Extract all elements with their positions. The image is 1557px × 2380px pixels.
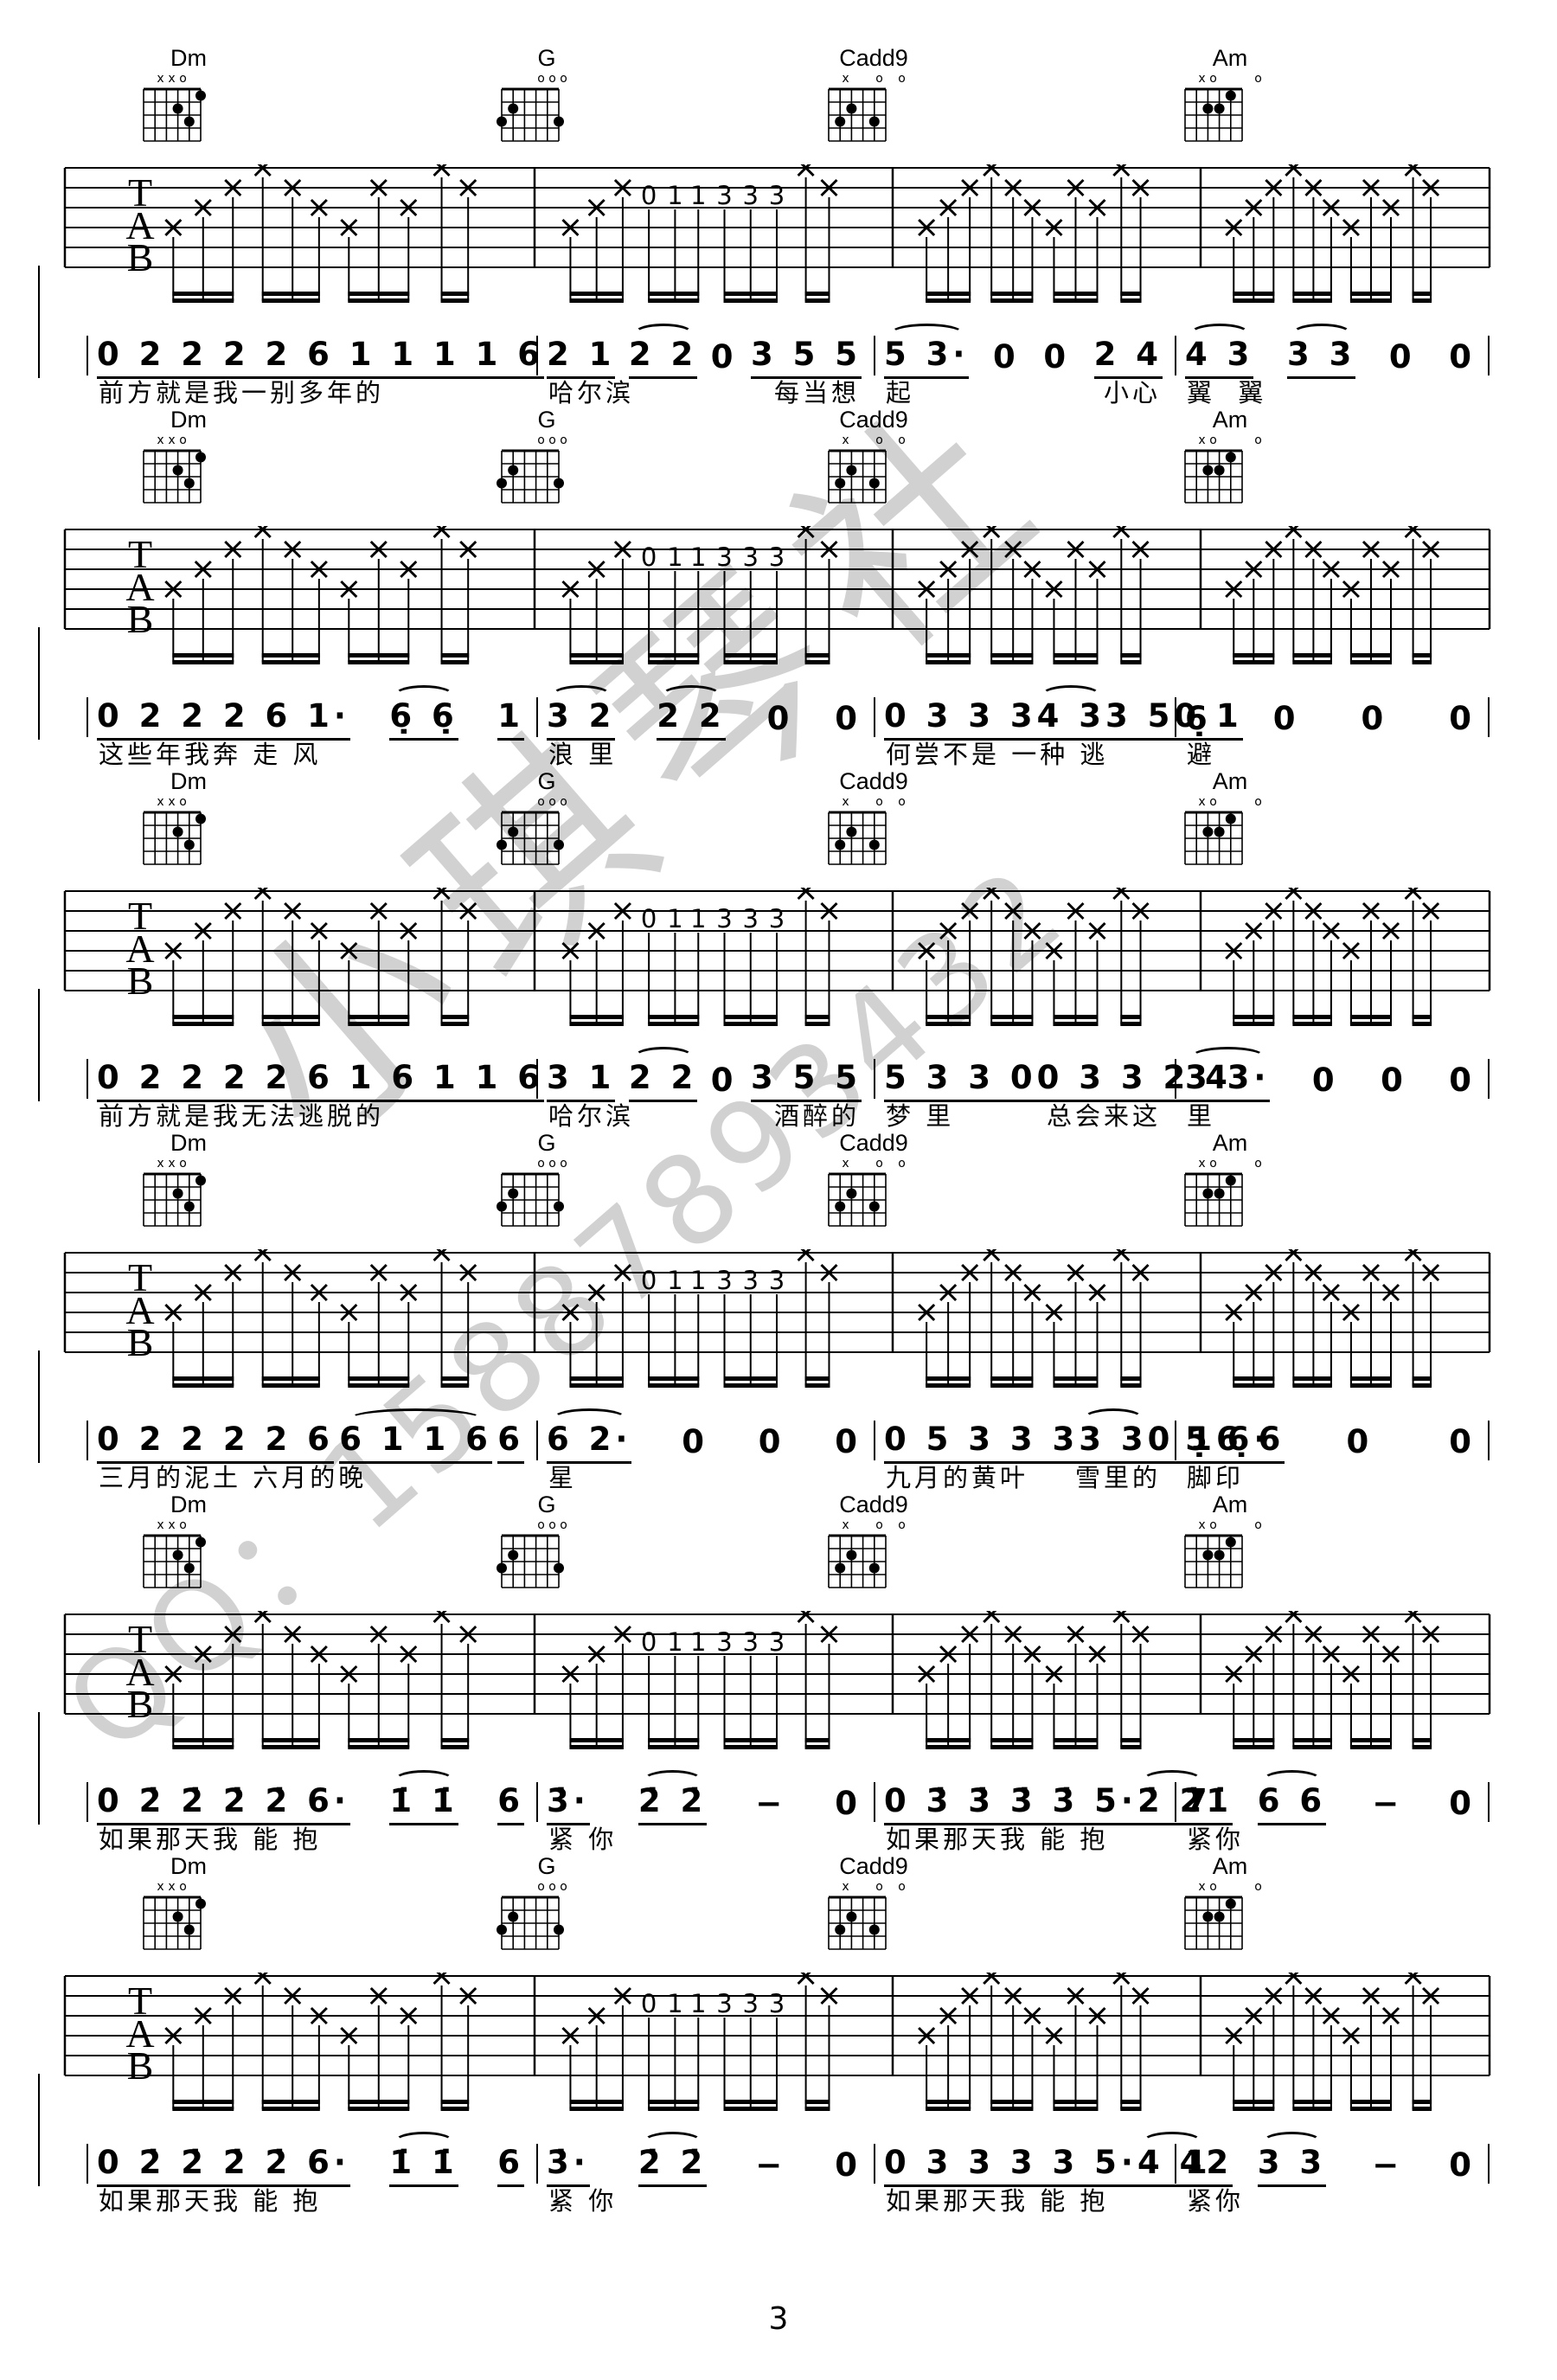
tab-fret-number: 0 xyxy=(641,904,657,933)
jianpu-barline xyxy=(874,697,875,737)
tab-staff: TAB011333 xyxy=(0,1973,1557,2120)
jianpu-barline xyxy=(86,1782,88,1822)
string-marker-empty xyxy=(189,434,200,448)
tie-arc xyxy=(1041,685,1101,706)
tab-fret-number: 1 xyxy=(667,181,682,210)
jianpu-group: 0 xyxy=(1273,702,1300,741)
lyric-text: 紧你 xyxy=(1187,1824,1244,1855)
jianpu-measure-3: 0 5 3 3 33 30 16 6 xyxy=(884,1414,1163,1464)
string-marker-empty xyxy=(851,1158,862,1171)
tab-fret-number: 3 xyxy=(743,1266,759,1295)
chord-diagram-am: Amxoo xyxy=(1178,768,1282,869)
chord-grid-wrap xyxy=(1178,1533,1282,1592)
string-marker-empty xyxy=(200,1881,211,1895)
chord-string-markers: xoo xyxy=(1178,1158,1282,1171)
chord-name: Dm xyxy=(137,407,240,433)
tab-fret-number: 3 xyxy=(769,542,785,572)
jianpu-group: 0 xyxy=(835,1426,862,1464)
jianpu-group: 0 xyxy=(1312,1064,1339,1102)
muted-string-marker: x xyxy=(166,1881,177,1895)
strum-x-mark xyxy=(1113,526,1129,537)
chord-string-markers: ooo xyxy=(495,73,599,87)
chord-grid-wrap xyxy=(137,1533,240,1592)
jianpu-barline xyxy=(86,697,88,737)
jianpu-barline xyxy=(1488,2144,1490,2184)
muted-string-marker: x xyxy=(155,1519,166,1533)
jianpu-group: − xyxy=(1372,2149,1403,2187)
string-marker-empty xyxy=(513,796,524,810)
chord-name: Am xyxy=(1178,1492,1282,1517)
lyric-text: 前方就是我一别多年的 xyxy=(99,377,384,408)
chord-string-markers: ooo xyxy=(495,1158,599,1171)
jianpu-group: 3̇· xyxy=(547,1785,590,1825)
string-marker-empty xyxy=(862,73,874,87)
tab-fret-number: 3 xyxy=(743,1627,759,1657)
lyric-text: 雪里的 xyxy=(1075,1462,1161,1493)
string-marker-empty xyxy=(1230,1881,1241,1895)
strum-x-mark xyxy=(434,1249,450,1261)
jianpu-group: 6 xyxy=(497,1785,524,1825)
jianpu-group: 0 xyxy=(711,1064,738,1102)
chord-name: Am xyxy=(1178,1853,1282,1879)
muted-string-marker: x xyxy=(1196,434,1208,448)
open-string-marker: o xyxy=(874,434,885,448)
open-string-marker: o xyxy=(896,1158,907,1171)
string-marker-empty xyxy=(524,1881,535,1895)
string-marker-empty xyxy=(524,1158,535,1171)
tab-clef-letter: B xyxy=(127,2043,154,2088)
open-string-marker: o xyxy=(1208,796,1219,810)
open-string-marker: o xyxy=(177,434,189,448)
jianpu-group: 1 xyxy=(497,700,524,741)
jianpu-barline xyxy=(1488,1059,1490,1099)
chord-grid xyxy=(137,1171,208,1230)
chord-string-markers: ooo xyxy=(495,796,599,810)
chord-diagram-dm: Dmxxo xyxy=(137,45,240,145)
chord-grid-wrap xyxy=(495,810,599,869)
open-string-marker: o xyxy=(1208,73,1219,87)
jianpu-group: 0 xyxy=(1449,1787,1476,1825)
string-marker-empty xyxy=(1230,73,1241,87)
chord-grid-wrap xyxy=(137,810,240,869)
tab-fret-number: 3 xyxy=(716,542,732,572)
jianpu-measure-2: 3̇·2̇ 2̇−0 xyxy=(547,1775,862,1825)
tab-fret-number: 0 xyxy=(641,542,657,572)
string-marker-empty xyxy=(569,1881,580,1895)
string-marker-empty xyxy=(513,73,524,87)
tie-arc xyxy=(551,685,612,706)
chord-diagram-dm: Dmxxo xyxy=(137,1492,240,1592)
muted-string-marker: x xyxy=(155,796,166,810)
jianpu-group: 2̇ 2̇ xyxy=(638,2146,707,2187)
string-marker-empty xyxy=(1219,73,1230,87)
tab-clef-letter: B xyxy=(127,959,154,1003)
jianpu-measure-2: 2 12 203 5 5 xyxy=(547,329,862,379)
lyric-text: 星 xyxy=(548,1462,577,1493)
strum-x-mark xyxy=(798,164,814,176)
jianpu-group: 0 xyxy=(711,341,738,379)
jianpu-group: 3 2 xyxy=(547,700,615,741)
strum-x-mark xyxy=(1285,526,1301,537)
jianpu-group: 0 xyxy=(682,1426,708,1464)
chord-name: G xyxy=(495,407,599,433)
muted-string-marker: x xyxy=(155,1881,166,1895)
chord-string-markers: xoo xyxy=(822,1519,926,1533)
jianpu-group: 3 3· xyxy=(1185,1062,1270,1102)
chord-grid xyxy=(495,810,566,869)
chord-string-markers: ooo xyxy=(495,1519,599,1533)
strum-x-mark xyxy=(434,1973,450,1984)
lyric-text: 浪 里 xyxy=(548,739,617,770)
jianpu-group: 2 2 xyxy=(629,338,697,379)
jianpu-group: 3 3 xyxy=(1079,1423,1147,1464)
tab-fret-number: 3 xyxy=(743,1989,759,2018)
tab-fret-number: 0 xyxy=(641,1266,657,1295)
chord-diagram-cadd9: Cadd9xoo xyxy=(822,768,926,869)
system-1: DmxxoGoooCadd9xooAmxooTAB0113330 2 2 2 2… xyxy=(0,45,1557,407)
strum-x-mark xyxy=(1285,164,1301,176)
open-string-marker: o xyxy=(535,796,547,810)
open-string-marker: o xyxy=(896,796,907,810)
lyric-text: 如果那天我 能 抱 xyxy=(886,2185,1108,2216)
jianpu-measure-3: 5 3 3 00 3 3 2 4 xyxy=(884,1052,1163,1102)
jianpu-group: 0 3 3 3 xyxy=(884,700,1037,741)
string-marker-empty xyxy=(211,1519,222,1533)
muted-string-marker: x xyxy=(1196,1881,1208,1895)
strum-x-mark xyxy=(1285,1973,1301,1984)
chord-grid xyxy=(137,810,208,869)
jianpu-group: 0 xyxy=(1449,341,1476,379)
tab-staff-wrap: TAB011333 xyxy=(0,1973,1557,2120)
string-marker-empty xyxy=(569,1519,580,1533)
lyric-text: 紧你 xyxy=(1187,2185,1244,2216)
chord-grid-wrap xyxy=(1178,448,1282,507)
strum-x-mark xyxy=(984,1611,999,1622)
chord-name: Cadd9 xyxy=(822,768,926,794)
string-marker-empty xyxy=(524,796,535,810)
chord-string-markers: xxo xyxy=(137,1881,240,1895)
string-marker-empty xyxy=(851,1519,862,1533)
string-marker-empty xyxy=(1230,1519,1241,1533)
open-string-marker: o xyxy=(535,73,547,87)
tab-fret-number: 1 xyxy=(690,904,706,933)
jianpu-measure-4: 6̣000 xyxy=(1185,690,1476,741)
jianpu-measure-3: 0 3̇ 3̇ 3̇ 3̇ 5·2̇ 2̇1̇ xyxy=(884,1775,1163,1825)
open-string-marker: o xyxy=(558,1158,569,1171)
chord-diagram-cadd9: Cadd9xoo xyxy=(822,1130,926,1230)
jianpu-measure-1: 0 2̇ 2̇ 2̇ 2̇ 6·1̇ 1̇6 xyxy=(97,1775,524,1825)
string-marker-empty xyxy=(1230,1158,1241,1171)
string-marker-empty xyxy=(211,1158,222,1171)
jianpu-barline xyxy=(874,2144,875,2184)
system-5: DmxxoGoooCadd9xooAmxooTAB0113330 2̇ 2̇ 2… xyxy=(0,1492,1557,1853)
jianpu-group: 4 3 xyxy=(1037,700,1105,741)
string-marker-empty xyxy=(1219,796,1230,810)
system-2: DmxxoGoooCadd9xooAmxooTAB0113330 2 2 2 6… xyxy=(0,407,1557,768)
chord-diagram-cadd9: Cadd9xoo xyxy=(822,1853,926,1953)
system-left-spine xyxy=(38,1350,40,1463)
jianpu-group: 3 1 xyxy=(547,1062,615,1102)
chord-string-markers: ooo xyxy=(495,434,599,448)
chord-grid-wrap xyxy=(137,1171,240,1230)
strum-x-mark xyxy=(434,1611,450,1622)
chord-name: G xyxy=(495,1492,599,1517)
chord-grid xyxy=(137,1533,208,1592)
tie-arc xyxy=(661,685,721,706)
jianpu-group: 0 xyxy=(759,1426,785,1464)
chord-name: G xyxy=(495,768,599,794)
jianpu-measure-1: 0 2̇ 2̇ 2̇ 2̇ 6·1̇ 1̇6 xyxy=(97,2137,524,2187)
chord-grid-wrap xyxy=(822,1895,926,1953)
tie-arc xyxy=(552,1408,627,1429)
jianpu-group: 0 2 2 2 2 6 1 6 1 1 6 xyxy=(97,1062,544,1102)
string-marker-empty xyxy=(569,796,580,810)
open-string-marker: o xyxy=(1253,434,1264,448)
lyric-text: 翼 翼 xyxy=(1187,377,1266,408)
jianpu-group: 0 2 2 2 6 1· xyxy=(97,700,350,741)
lyric-text: 脚印 xyxy=(1187,1462,1244,1493)
jianpu-group: 7 xyxy=(1185,1785,1212,1825)
open-string-marker: o xyxy=(177,1158,189,1171)
muted-string-marker: x xyxy=(155,73,166,87)
jianpu-group: 0 xyxy=(1389,341,1416,379)
string-marker-empty xyxy=(189,1881,200,1895)
chord-diagram-cadd9: Cadd9xoo xyxy=(822,1492,926,1592)
string-marker-empty xyxy=(1241,1158,1253,1171)
string-marker-empty xyxy=(524,73,535,87)
jianpu-measure-4: 76 6−0 xyxy=(1185,1775,1476,1825)
tab-fret-number: 3 xyxy=(743,904,759,933)
lyric-text: 起 xyxy=(886,377,914,408)
chord-name: Cadd9 xyxy=(822,1492,926,1517)
jianpu-group: 0 2̇ 2̇ 2̇ 2̇ 6· xyxy=(97,2146,350,2187)
chord-grid-wrap xyxy=(495,448,599,507)
tab-fret-number: 1 xyxy=(690,542,706,572)
lyric-text: 九月的黄叶 xyxy=(886,1462,1028,1493)
lyric-text: 避 xyxy=(1187,739,1215,770)
jianpu-group: 2 2 xyxy=(629,1062,697,1102)
jianpu-group: 4 3 xyxy=(1185,338,1253,379)
jianpu-barline xyxy=(874,1059,875,1099)
jianpu-barline xyxy=(536,1421,538,1460)
tie-arc xyxy=(394,1770,454,1791)
chord-grid xyxy=(822,87,893,145)
jianpu-group: 5 3· xyxy=(884,338,969,379)
muted-string-marker: x xyxy=(155,434,166,448)
jianpu-group: 6̣ xyxy=(1185,702,1212,741)
chord-grid-wrap xyxy=(495,87,599,145)
chord-string-markers: xoo xyxy=(822,73,926,87)
strum-x-mark xyxy=(798,526,814,537)
string-marker-empty xyxy=(862,796,874,810)
jianpu-group: 3 3 xyxy=(1258,2146,1326,2187)
string-marker-empty xyxy=(200,434,211,448)
system-4: DmxxoGoooCadd9xooAmxooTAB0113330 2 2 2 2… xyxy=(0,1130,1557,1492)
chord-name: Am xyxy=(1178,45,1282,71)
muted-string-marker: x xyxy=(840,1881,851,1895)
jianpu-measure-4: 5̣ 6̣·00 xyxy=(1185,1414,1476,1464)
chord-string-markers: xoo xyxy=(822,796,926,810)
chord-diagram-dm: Dmxxo xyxy=(137,1130,240,1230)
chord-string-markers: xoo xyxy=(1178,434,1282,448)
string-marker-empty xyxy=(885,434,896,448)
jianpu-measure-4: 3 3·000 xyxy=(1185,1052,1476,1102)
string-marker-empty xyxy=(513,1881,524,1895)
chord-grid xyxy=(495,1895,566,1953)
system-left-spine xyxy=(38,627,40,740)
jianpu-group: 0 xyxy=(835,702,862,741)
chord-string-markers: xxo xyxy=(137,1519,240,1533)
tie-arc xyxy=(1190,1047,1265,1068)
jianpu-measure-2: 6 2·000 xyxy=(547,1414,862,1464)
chord-name: Cadd9 xyxy=(822,407,926,433)
tab-fret-number: 1 xyxy=(690,1627,706,1657)
strum-x-mark xyxy=(1406,1249,1421,1261)
strum-x-mark xyxy=(798,1249,814,1261)
chord-string-markers: xoo xyxy=(822,1881,926,1895)
lyric-text: 何尝不是 一种 逃 xyxy=(886,739,1108,770)
chord-grid xyxy=(822,1533,893,1592)
chord-string-markers: xxo xyxy=(137,1158,240,1171)
tie-arc xyxy=(349,1408,483,1429)
tab-staff: TAB011333 xyxy=(0,526,1557,673)
tie-arc xyxy=(643,2132,703,2152)
string-marker-empty xyxy=(1241,1881,1253,1895)
chord-grid-wrap xyxy=(822,448,926,507)
jianpu-group: 3 5 5 xyxy=(751,1062,862,1102)
chord-grid-wrap xyxy=(495,1895,599,1953)
string-marker-empty xyxy=(851,434,862,448)
open-string-marker: o xyxy=(1208,434,1219,448)
tie-arc xyxy=(394,685,454,706)
chord-string-markers: xoo xyxy=(1178,796,1282,810)
jianpu-measure-2: 3 22 200 xyxy=(547,690,862,741)
tab-staff-wrap: TAB011333 xyxy=(0,1249,1557,1396)
system-6: DmxxoGoooCadd9xooAmxooTAB0113330 2̇ 2̇ 2… xyxy=(0,1853,1557,2215)
lyric-text: 小心 xyxy=(1104,377,1161,408)
chord-name: Dm xyxy=(137,1492,240,1517)
tie-arc xyxy=(643,1770,703,1791)
chord-diagram-am: Amxoo xyxy=(1178,45,1282,145)
string-marker-empty xyxy=(885,1519,896,1533)
chord-diagram-am: Amxoo xyxy=(1178,1853,1282,1953)
open-string-marker: o xyxy=(558,434,569,448)
muted-string-marker: x xyxy=(155,1158,166,1171)
string-marker-empty xyxy=(851,1881,862,1895)
chord-name: Dm xyxy=(137,45,240,71)
tab-fret-number: 3 xyxy=(769,904,785,933)
open-string-marker: o xyxy=(1253,1519,1264,1533)
jianpu-measure-3: 0 3 3 34 33 50 1 xyxy=(884,690,1163,741)
jianpu-barline xyxy=(1175,336,1176,375)
chord-grid-wrap xyxy=(822,87,926,145)
jianpu-group: − xyxy=(755,1787,786,1825)
jianpu-measure-1: 0 2 2 2 6 1·6̣ 6̣1 xyxy=(97,690,524,741)
string-marker-empty xyxy=(885,796,896,810)
open-string-marker: o xyxy=(535,434,547,448)
chord-name: Dm xyxy=(137,1853,240,1879)
open-string-marker: o xyxy=(547,1519,558,1533)
jianpu-barline xyxy=(874,336,875,375)
jianpu-barline xyxy=(86,1421,88,1460)
jianpu-group: 2̇ 2̇ xyxy=(638,1785,707,1825)
chord-diagram-dm: Dmxxo xyxy=(137,1853,240,1953)
page-number: 3 xyxy=(744,2301,813,2337)
strum-x-mark xyxy=(255,1611,271,1622)
chord-grid-wrap xyxy=(137,448,240,507)
tab-clef-letter: B xyxy=(127,597,154,641)
jianpu-group: 5̣ 6̣· xyxy=(1185,1423,1270,1464)
tab-fret-number: 3 xyxy=(769,1627,785,1657)
chord-grid-wrap xyxy=(822,1171,926,1230)
string-marker-empty xyxy=(200,1519,211,1533)
lyrics-measure-3: 如果那天我 能 抱 xyxy=(886,2185,1161,2220)
open-string-marker: o xyxy=(547,796,558,810)
chord-grid-wrap xyxy=(495,1533,599,1592)
chord-grid xyxy=(137,1895,208,1953)
chord-grid-wrap xyxy=(137,1895,240,1953)
string-marker-empty xyxy=(211,796,222,810)
jianpu-measure-4: 13 3−0 xyxy=(1185,2137,1476,2187)
string-marker-empty xyxy=(513,1519,524,1533)
chord-grid xyxy=(822,448,893,507)
jianpu-group: 1̇ 1̇ xyxy=(389,1785,458,1825)
tab-fret-number: 1 xyxy=(667,1627,682,1657)
jianpu-group: 0 xyxy=(1362,702,1388,741)
chord-grid-wrap xyxy=(822,810,926,869)
chord-grid-wrap xyxy=(1178,810,1282,869)
string-marker-empty xyxy=(851,73,862,87)
tab-staff: TAB011333 xyxy=(0,888,1557,1035)
chord-grid xyxy=(1178,448,1249,507)
string-marker-empty xyxy=(1219,434,1230,448)
jianpu-group: 6 2· xyxy=(547,1423,631,1464)
chord-diagram-am: Amxoo xyxy=(1178,1492,1282,1592)
lyric-text: 哈尔滨 xyxy=(548,377,634,408)
jianpu-group: 0 xyxy=(993,341,1020,379)
muted-string-marker: x xyxy=(840,73,851,87)
chord-diagram-g: Gooo xyxy=(495,1130,599,1230)
tab-staff-wrap: TAB011333 xyxy=(0,526,1557,673)
jianpu-barline xyxy=(86,2144,88,2184)
jianpu-barline xyxy=(874,1421,875,1460)
open-string-marker: o xyxy=(896,1881,907,1895)
string-marker-empty xyxy=(513,1158,524,1171)
chord-diagram-am: Amxoo xyxy=(1178,407,1282,507)
string-marker-empty xyxy=(200,796,211,810)
tab-staff: TAB011333 xyxy=(0,164,1557,311)
tab-staff-wrap: TAB011333 xyxy=(0,164,1557,311)
open-string-marker: o xyxy=(535,1881,547,1895)
strum-x-mark xyxy=(798,1973,814,1984)
string-marker-empty xyxy=(189,1158,200,1171)
chord-string-markers: xoo xyxy=(822,1158,926,1171)
chord-diagram-cadd9: Cadd9xoo xyxy=(822,45,926,145)
strum-x-mark xyxy=(1406,1611,1421,1622)
tab-fret-number: 1 xyxy=(690,1266,706,1295)
string-marker-empty xyxy=(851,796,862,810)
string-marker-empty xyxy=(211,1881,222,1895)
jianpu-group: 0 3̇ 3̇ 3̇ 3̇ 5· xyxy=(884,1785,1137,1825)
chord-diagram-dm: Dmxxo xyxy=(137,407,240,507)
string-marker-empty xyxy=(189,73,200,87)
string-marker-empty xyxy=(1219,1881,1230,1895)
jianpu-group: 0 2̇ 2̇ 2̇ 2̇ 6· xyxy=(97,1785,350,1825)
chord-name: Am xyxy=(1178,407,1282,433)
jianpu-group: 6̣ 6̣ xyxy=(389,700,458,741)
tie-arc xyxy=(1262,1770,1323,1791)
jianpu-group: 1̇ 1̇ xyxy=(389,2146,458,2187)
